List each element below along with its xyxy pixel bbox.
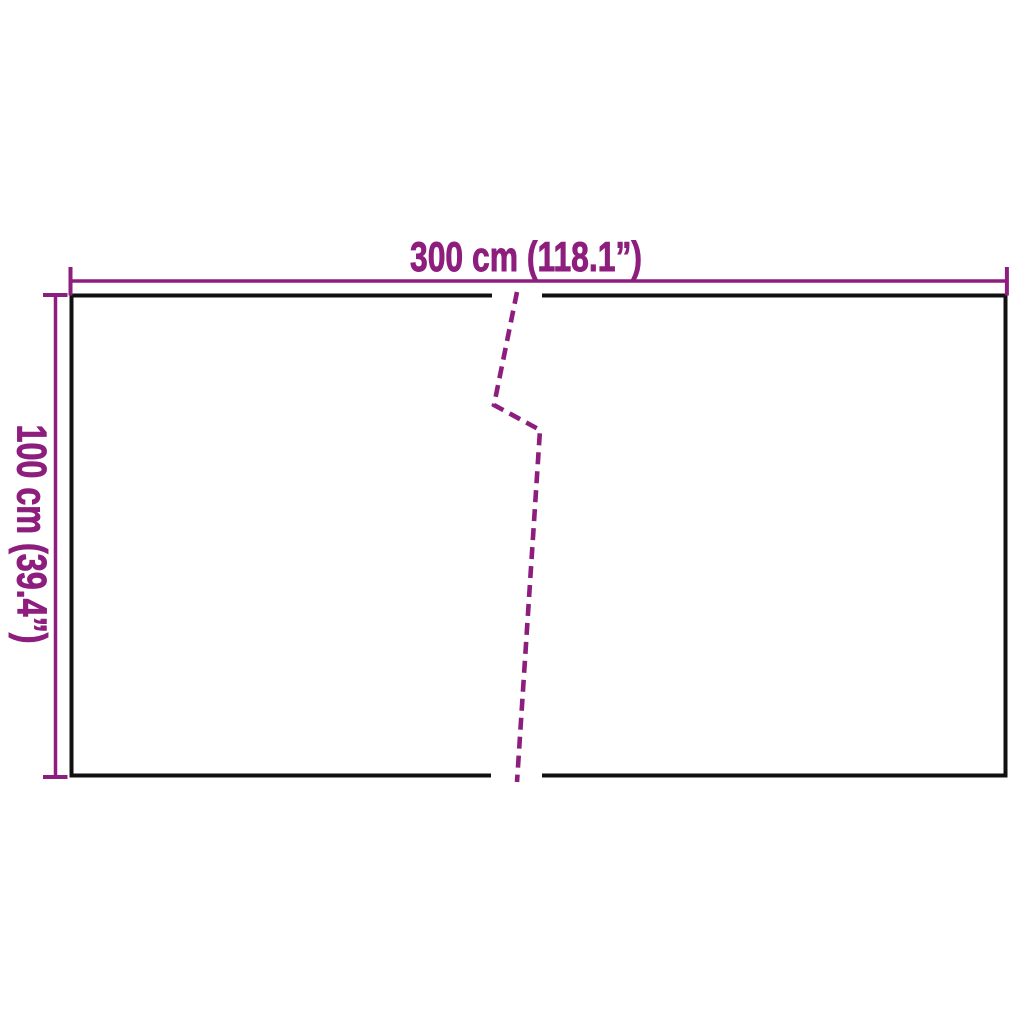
svg-text:100 cm (39.4”): 100 cm (39.4”) xyxy=(9,425,56,644)
svg-text:300 cm (118.1”): 300 cm (118.1”) xyxy=(410,233,642,280)
